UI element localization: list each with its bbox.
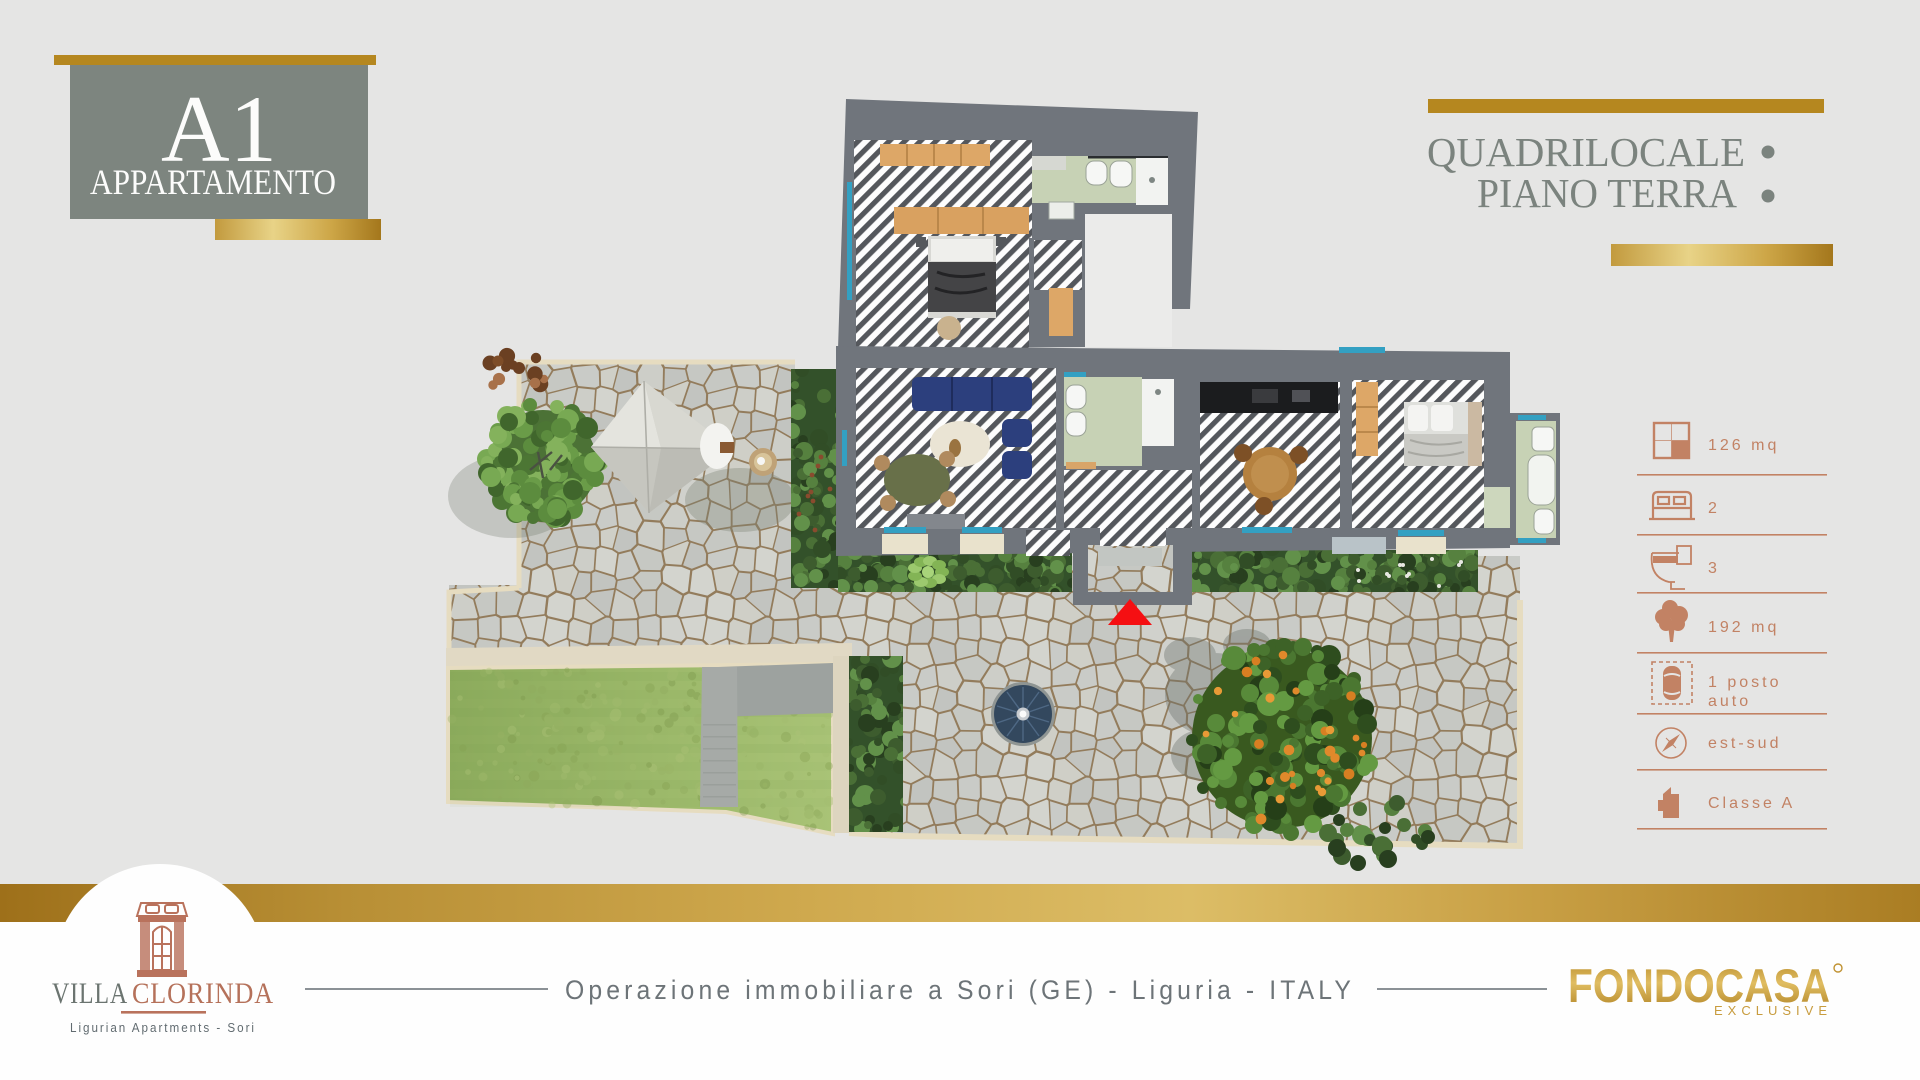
svg-text:PIANO TERRA: PIANO TERRA xyxy=(1477,170,1737,216)
svg-text:126 mq: 126 mq xyxy=(1708,437,1779,454)
svg-text:2: 2 xyxy=(1708,500,1720,517)
svg-text:Operazione immobiliare a Sori: Operazione immobiliare a Sori (GE) - Lig… xyxy=(565,975,1355,1005)
svg-text:3: 3 xyxy=(1708,560,1720,577)
svg-text:est-sud: est-sud xyxy=(1708,735,1781,752)
svg-text:QUADRILOCALE: QUADRILOCALE xyxy=(1427,129,1745,175)
svg-text:1 posto: 1 posto xyxy=(1708,674,1781,691)
svg-text:EXCLUSIVE: EXCLUSIVE xyxy=(1714,1003,1832,1018)
svg-text:APPARTAMENTO: APPARTAMENTO xyxy=(90,162,336,202)
svg-text:auto: auto xyxy=(1708,693,1751,710)
svg-text:CLORINDA: CLORINDA xyxy=(132,977,274,1010)
svg-text:Ligurian Apartments - Sori: Ligurian Apartments - Sori xyxy=(70,1020,256,1035)
svg-text:VILLA: VILLA xyxy=(52,977,128,1010)
svg-text:192 mq: 192 mq xyxy=(1708,619,1779,636)
svg-text:Classe A: Classe A xyxy=(1708,795,1795,812)
